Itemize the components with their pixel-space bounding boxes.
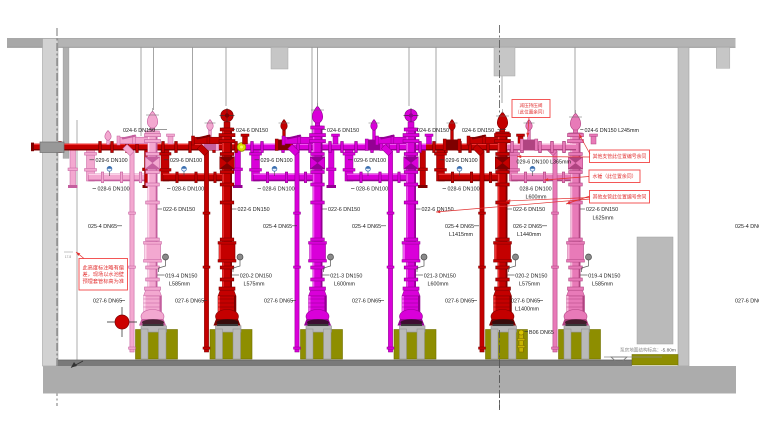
svg-text:-5.80m: -5.80m [661, 348, 676, 354]
svg-text:028-6 DN100: 028-6 DN100 [448, 187, 480, 193]
svg-text:025-4 DN6: 025-4 DN6 [735, 224, 759, 230]
svg-text:027-6 DN65: 027-6 DN65 [264, 298, 293, 304]
svg-text:028-6 DN100: 028-6 DN100 [98, 187, 130, 193]
svg-text:027-6 DN65: 027-6 DN65 [175, 298, 204, 304]
svg-text:027-6 DN65: 027-6 DN65 [445, 298, 474, 304]
svg-text:预埋套管标高为准: 预埋套管标高为准 [82, 277, 124, 285]
svg-text:L1440mm: L1440mm [517, 232, 541, 238]
svg-text:L1400mm: L1400mm [515, 307, 539, 313]
svg-text:029-6 DN100 L365mm: 029-6 DN100 L365mm [517, 160, 572, 166]
svg-text:022-6 DN150: 022-6 DN150 [328, 207, 360, 213]
svg-text:020-2 DN150: 020-2 DN150 [240, 273, 272, 279]
svg-text:026-2 DN65: 026-2 DN65 [513, 224, 542, 230]
svg-text:019-4 DN150: 019-4 DN150 [588, 273, 620, 279]
svg-text:029-6 DN100: 029-6 DN100 [96, 158, 128, 164]
svg-text:其他支管此位置编号余同: 其他支管此位置编号余同 [593, 194, 647, 201]
svg-text:025-4 DN65: 025-4 DN65 [263, 224, 292, 230]
svg-text:L575mm: L575mm [244, 282, 265, 288]
svg-text:此高度标注略有偏: 此高度标注略有偏 [82, 263, 124, 271]
svg-text:028-6 DN100: 028-6 DN100 [520, 187, 552, 193]
svg-text:029-6 DN100: 029-6 DN100 [261, 158, 293, 164]
svg-text:027-6 DN65: 027-6 DN65 [511, 298, 540, 304]
svg-text:L585mm: L585mm [592, 282, 613, 288]
svg-text:L585mm: L585mm [169, 282, 190, 288]
svg-text:L1415mm: L1415mm [449, 232, 473, 238]
svg-text:L600mm: L600mm [334, 282, 355, 288]
svg-text:029-6 DN100: 029-6 DN100 [170, 158, 202, 164]
svg-text:020-2 DN150: 020-2 DN150 [515, 273, 547, 279]
svg-text:028-6 DN100: 028-6 DN100 [263, 187, 295, 193]
svg-text:028-6 DN100: 028-6 DN100 [172, 187, 204, 193]
svg-text:027-6 DN65: 027-6 DN65 [735, 298, 759, 304]
svg-text:024-6 DN150: 024-6 DN150 [123, 128, 155, 134]
svg-text:水锤（此位置余同）: 水锤（此位置余同） [592, 173, 636, 180]
svg-text:027-6 DN65: 027-6 DN65 [93, 298, 122, 304]
svg-text:（此位置余同）: （此位置余同） [515, 108, 547, 115]
svg-text:024-6 DN150: 024-6 DN150 [327, 128, 359, 134]
svg-text:029-6 DN100: 029-6 DN100 [446, 158, 478, 164]
svg-text:泵房地面结构标高：: 泵房地面结构标高： [620, 347, 661, 354]
svg-text:L625mm: L625mm [593, 216, 614, 222]
svg-text:025-4 DN65: 025-4 DN65 [445, 224, 474, 230]
svg-text:L600mm: L600mm [428, 282, 449, 288]
svg-text:L575mm: L575mm [519, 282, 540, 288]
svg-text:17.8: 17.8 [65, 255, 71, 259]
svg-text:022-6 DN150: 022-6 DN150 [513, 207, 545, 213]
svg-text:027-6 DN65: 027-6 DN65 [352, 298, 381, 304]
svg-text:028-6 DN100: 028-6 DN100 [356, 187, 388, 193]
svg-text:024-6 DN150: 024-6 DN150 [417, 128, 449, 134]
svg-text:025-4 DN65: 025-4 DN65 [88, 224, 117, 230]
svg-text:029-6 DN100: 029-6 DN100 [354, 158, 386, 164]
svg-text:022-6 DN150: 022-6 DN150 [163, 207, 195, 213]
svg-text:024-6 DN150 L245mm: 024-6 DN150 L245mm [585, 128, 640, 134]
svg-text:021-3 DN150: 021-3 DN150 [330, 273, 362, 279]
svg-text:024-6 DN150: 024-6 DN150 [236, 128, 268, 134]
svg-text:019-4 DN150: 019-4 DN150 [165, 273, 197, 279]
svg-text:021-3 DN150: 021-3 DN150 [424, 273, 456, 279]
svg-text:022-6 DN150: 022-6 DN150 [238, 207, 270, 213]
svg-text:差，现场以水池壁: 差，现场以水池壁 [82, 270, 124, 278]
svg-text:减压持压阀: 减压持压阀 [520, 102, 543, 109]
svg-text:025-4 DN65: 025-4 DN65 [352, 224, 381, 230]
svg-text:B06 DN65: B06 DN65 [529, 330, 554, 336]
svg-text:其他支管此位置编号余同: 其他支管此位置编号余同 [593, 153, 647, 160]
svg-text:024-6 DN150: 024-6 DN150 [462, 128, 494, 134]
svg-text:022-6 DN150: 022-6 DN150 [586, 207, 618, 213]
